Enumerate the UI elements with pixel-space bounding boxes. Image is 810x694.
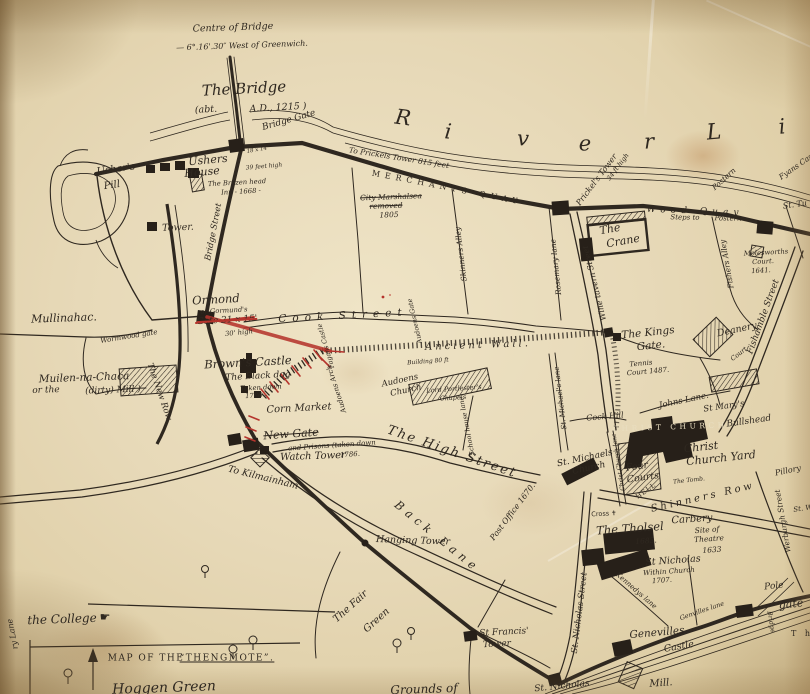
cock-hill: Cock Hill [586,411,624,422]
tower: Tower. [162,223,194,234]
inset-title-2: “THENGMOTE”. [180,655,275,664]
fishers-alley: Fishers Alley [719,239,735,289]
ushers-pill-1: Usher's [96,162,136,177]
genevilles-castle-1: Genevilles [629,625,685,640]
manicule-icon: ☛ [100,611,111,623]
muilen-na-chaca-1: Muilen-na-Chaca [39,371,130,385]
pole-gate-2: gate [778,597,804,611]
ormond-gate-3: Gate 21 x 15' [197,315,258,327]
map-canvas: Centre of Bridge— 6°.16'.30″ West of Gre… [0,0,810,694]
ushers-house-2: House [184,165,220,179]
ushers-pill-2: Pill [103,180,121,192]
audoens-gate: Audoens Gate [407,298,424,344]
hell: HELL [635,482,658,501]
pole-gate-1: Pole [764,582,784,593]
river-letter-2: i [444,121,453,143]
wine-tavern-street: Wine tavern Street [582,245,608,322]
theatre-date: 1633 [702,546,722,555]
brazen-head-2: Inn - 1668 - [221,188,261,197]
wormwood-gate: Wormwood gate [100,329,158,345]
the-tomb: The Tomb. [673,476,705,485]
ormond-gate-4: 30' high [225,328,254,338]
the-new-row: The New Row [145,362,173,422]
st-nicholas-street: St. Nicholas Street [571,572,589,654]
river-letter-7: i [778,116,787,138]
river-letter-1: R [394,107,413,130]
st-nicholas-church-3: 1707. [652,577,672,585]
rosemary-lane: Rosemary lane [549,239,562,296]
molesworths-court-3: 1641. [751,267,771,275]
st-marys: St Mary's [703,400,745,414]
fair-green-2: Green [362,607,392,635]
st-francis-tower-2: Tower [483,640,511,650]
watch-tower: Watch Tower [280,451,346,463]
bridge-street: Bridge Street [204,203,223,262]
centre-of-bridge-note: Centre of Bridge [193,22,274,34]
map-labels-layer: Centre of Bridge— 6°.16'.30″ West of Gre… [0,0,810,694]
grounds-of: Grounds of [390,682,458,694]
steps-to-postern-2: Postern [714,215,741,222]
genevilles-castle-2: Castle [663,640,694,655]
city-marshalsea-3: 1805 [379,211,398,219]
t-h-fragment: T h [791,630,810,638]
river-letter-3: v [517,128,530,150]
shinners-row: Shinners Row [650,481,756,515]
fair-green-1: The Fair [332,589,370,625]
tennis-court-2: Court 1487. [627,367,670,378]
muilen-na-chaca-3: (dirty) Mill ) [85,386,141,397]
skinners-alley: Skinners Alley [454,226,468,281]
st-nicholas-gate: St. Nicholas [534,680,590,694]
bridge-date-left: (abt. [195,105,218,116]
ormond-gate-1: Ormond [192,293,240,307]
mill: Mill. [649,678,673,690]
corn-market: Corn Market [266,402,331,415]
river-letter-4: e [579,134,591,155]
fishamble-street: Fishamble Street [746,279,781,356]
the-kings-gate-2: Gate. [636,339,665,352]
bullshead: Bullshead [726,414,772,429]
to-kilmainham: To Kilmainham [227,465,299,492]
postern-northeast: Postern [711,167,738,192]
hoggen-green: Hoggen Green [112,679,216,694]
browns-castle: Brown's Castle [204,355,292,371]
christ-church-caps: CHRIST CHURCH. [612,421,734,433]
inset-title-1: MAP OF THE [108,655,185,664]
molesworths-court-2: Court. [752,258,774,266]
steps-to-postern-1: Steps to [670,214,699,222]
the-college: the College [27,612,97,626]
muilen-na-chaca-2: or the [32,386,60,396]
the-kings-gate-1: The Kings [621,325,675,341]
ancient-wall: Ancient Wall. [425,339,531,353]
genvilles-lane: Genvilles lane [679,600,725,621]
bridge-gate-height: 39 feet high [245,162,282,171]
to-prickels-tower-note: To Prickels Tower 815 feet [348,146,449,169]
st-michaels-lane: St. Michael's lane [554,366,569,430]
pole-gate-bridge: Bridge [766,611,776,634]
molesworths-court-1: Molesworths [744,248,789,257]
black-dog-3: 1786 - [245,392,267,400]
fyans-castle: Fyans Cast [778,151,810,181]
cook-street: Cook Street [278,307,408,324]
fagans-castle: Fagans Castle [316,323,335,369]
pillory: Pillory [774,464,801,477]
johns-lane: Johns Lane. [658,392,709,411]
theatre: Theatre [694,534,724,544]
new-gate-1: New Gate [263,427,319,442]
st-francis-tower-1: St Francis' [479,627,529,639]
mullinahac: Mullinahac. [31,311,97,324]
bridge-gate-size: 18 x 14 [246,147,267,156]
post-office: Post Office 1670. [489,482,537,542]
ry-lane-fragment: ry Lane [6,618,20,650]
the-crane-1: The [599,222,622,236]
the-bridge: The Bridge [201,79,286,98]
greenwich-note: — 6°.16'.30″ West of Greenwich. [176,40,308,53]
st-w-fragment: St. W [793,504,810,514]
river-letter-5: r [644,131,655,152]
tholsel-date: 1683. [635,537,657,546]
st-tullocks-fragment: St. Tu [782,199,807,210]
the-high-street: The High Street [386,424,519,481]
river-letter-6: L [706,121,722,144]
werburgh-street: Werburgh Street [774,489,792,553]
hanging-tower: Hanging Tower [376,535,450,547]
black-dog-1: The Black dog [225,371,291,383]
building-note: Building 80 ft [407,358,449,367]
cross-marker: Cross ✝ [591,510,617,518]
